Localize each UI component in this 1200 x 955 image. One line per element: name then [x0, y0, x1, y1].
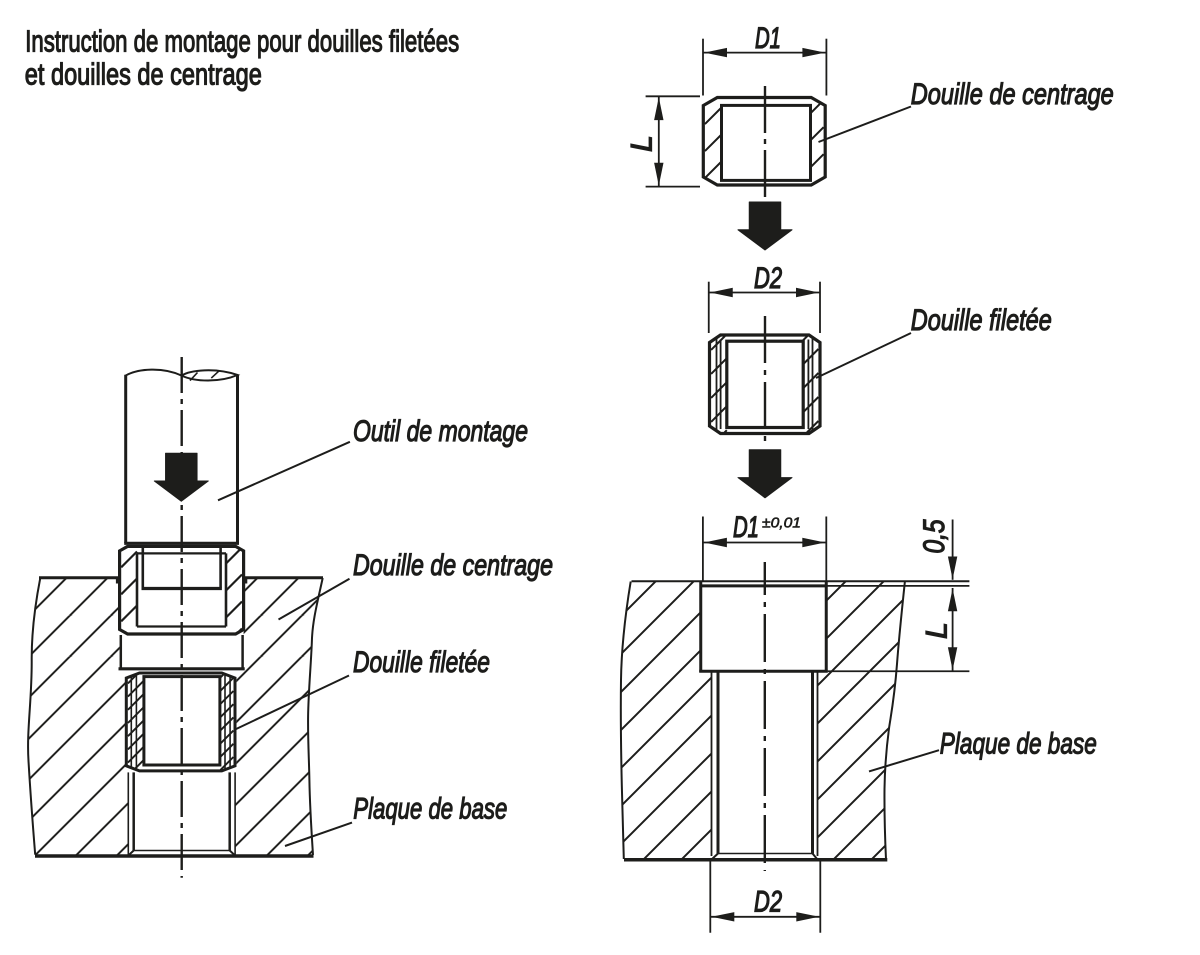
svg-text:L: L — [921, 622, 954, 639]
svg-text:Douille de centrage: Douille de centrage — [911, 78, 1114, 111]
svg-text:D1: D1 — [755, 22, 781, 55]
svg-text:Douille de centrage: Douille de centrage — [353, 549, 553, 582]
svg-text:D1: D1 — [733, 511, 759, 544]
svg-text:D2: D2 — [754, 886, 782, 919]
svg-text:et douilles de centrage: et douilles de centrage — [25, 57, 262, 92]
svg-text:Douille filetée: Douille filetée — [911, 304, 1052, 337]
svg-text:L: L — [626, 135, 659, 152]
svg-text:D2: D2 — [754, 262, 782, 295]
svg-text:Plaque de base: Plaque de base — [940, 728, 1097, 761]
svg-text:Outil de montage: Outil de montage — [353, 415, 528, 448]
svg-text:±0,01: ±0,01 — [762, 515, 801, 532]
svg-text:Douille filetée: Douille filetée — [353, 646, 490, 679]
svg-text:Instruction de montage pour do: Instruction de montage pour douilles fil… — [25, 24, 459, 59]
svg-text:0,5: 0,5 — [918, 519, 951, 553]
svg-text:Plaque de base: Plaque de base — [353, 793, 507, 826]
